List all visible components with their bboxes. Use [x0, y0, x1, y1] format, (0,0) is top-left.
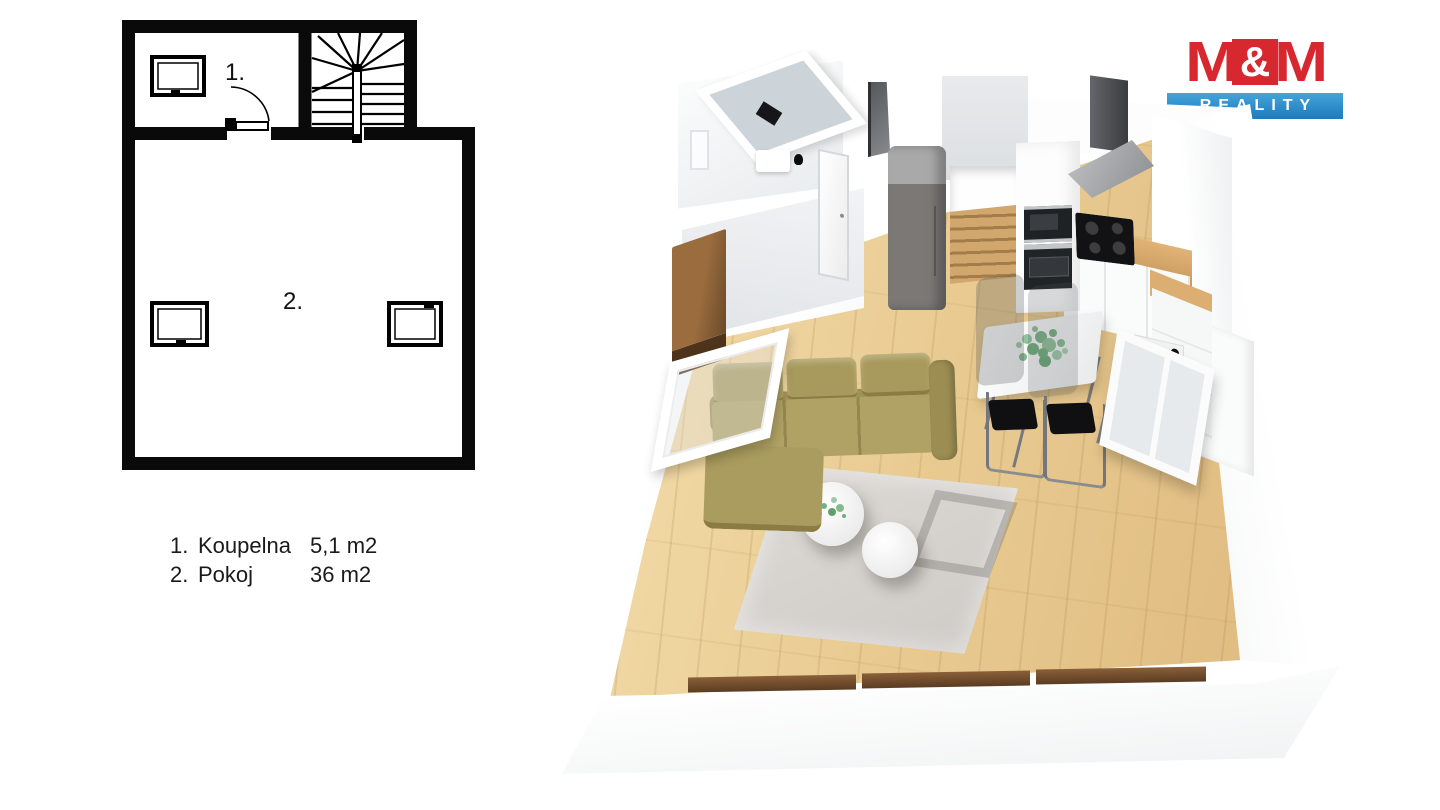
- coffee-table-small: [862, 522, 918, 578]
- room-2-label: 2.: [283, 288, 303, 315]
- dining-chair: [986, 392, 1046, 479]
- window-room2-right: [389, 303, 441, 345]
- stair-rail-top-post: [352, 64, 362, 72]
- sofa-cushion: [860, 352, 931, 396]
- washbasin: [756, 150, 790, 172]
- dining-chair: [1044, 396, 1106, 490]
- low-cabinet-strip: [862, 671, 1030, 689]
- dining-chair-translucent: [976, 273, 1024, 386]
- legend-number: 2.: [170, 560, 198, 589]
- door-leaf: [236, 122, 268, 130]
- legend-number: 1.: [170, 531, 198, 560]
- legend-row-pokoj: 2. Pokoj 36 m2: [170, 560, 377, 589]
- wooden-stairs: [950, 204, 1024, 284]
- range-hood-chimney: [1090, 75, 1128, 152]
- low-cabinet-strip: [1036, 667, 1206, 685]
- sofa-armrest: [928, 360, 957, 461]
- bathroom-door: [818, 149, 849, 282]
- room-1-label: 1.: [225, 59, 245, 86]
- stair-rail: [353, 68, 361, 140]
- stair-rail-bottom-post: [352, 134, 362, 143]
- legend-room-area: 36 m2: [310, 560, 377, 589]
- legend-row-koupelna: 1. Koupelna 5,1 m2: [170, 531, 377, 560]
- sofa-chaise: [703, 444, 824, 532]
- window-room2-left: [152, 303, 207, 345]
- legend-room-name: Koupelna: [198, 531, 310, 560]
- legend: 1. Koupelna 5,1 m2 2. Pokoj 36 m2: [170, 531, 377, 589]
- logo-ampersand: &: [1240, 39, 1270, 85]
- basin-faucet: [794, 154, 803, 165]
- legend-room-area: 5,1 m2: [310, 531, 377, 560]
- microwave: [1024, 205, 1072, 243]
- door-hinge: [225, 118, 236, 131]
- legend-room-name: Pokoj: [198, 560, 310, 589]
- sofa-cushion: [786, 357, 857, 401]
- logo-ampersand-box: &: [1232, 39, 1278, 85]
- low-cabinet-strip: [688, 675, 856, 693]
- window-bathroom: [152, 57, 204, 95]
- floor-plan-2d: 1. 2.: [100, 0, 500, 500]
- cooktop: [1075, 212, 1135, 265]
- wall-recess: [690, 130, 709, 170]
- tall-gray-cabinet: [888, 146, 946, 310]
- dining-chair-translucent: [1028, 281, 1078, 398]
- window-pane-divider: [1149, 358, 1170, 459]
- chair-seat: [988, 399, 1039, 431]
- floor-plan-3d: [540, 0, 1440, 810]
- chair-seat: [1046, 402, 1097, 434]
